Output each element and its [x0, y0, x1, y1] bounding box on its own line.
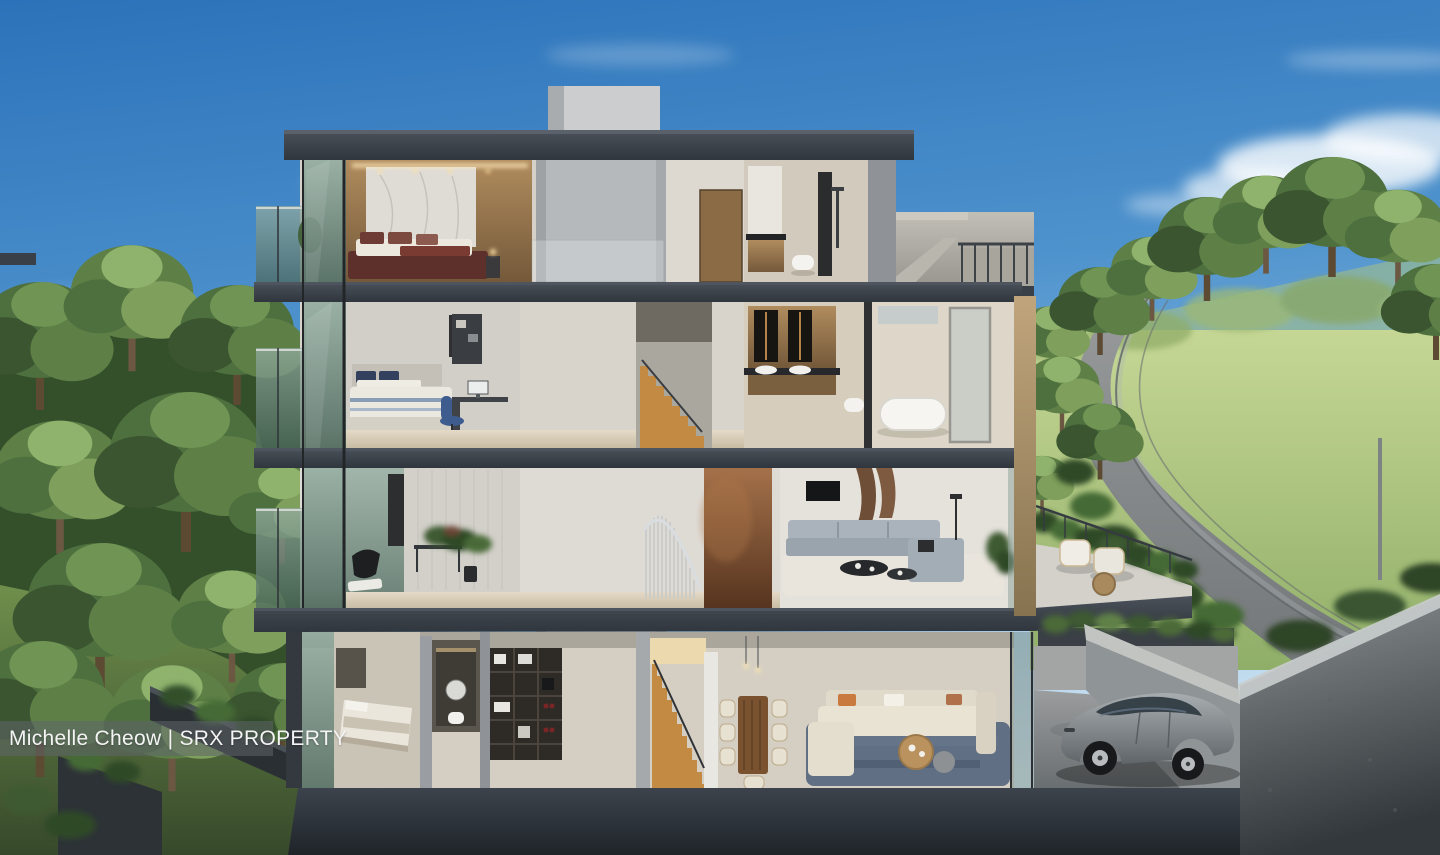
- dining-table: [738, 696, 768, 774]
- terrace-armchair: [1094, 548, 1124, 574]
- lamp-post: [1378, 438, 1382, 580]
- terrace-armchair: [1060, 540, 1090, 566]
- nightstand: [486, 256, 500, 278]
- bathtub-room: [872, 302, 1014, 448]
- basin: [755, 366, 777, 375]
- round-coffee-table: [933, 751, 955, 773]
- glass-door: [950, 308, 990, 442]
- watermark-text: Michelle Cheow | SRX PROPERTY: [9, 727, 347, 751]
- pier: [868, 158, 896, 282]
- floor-1-family-level: [300, 632, 1034, 789]
- roof-box: [548, 86, 660, 134]
- corridor-door: [700, 190, 742, 282]
- stool: [464, 566, 477, 582]
- tail-light: [1064, 728, 1075, 732]
- neighbor-roof-edge: [0, 253, 36, 265]
- toilet-3: [844, 398, 864, 412]
- family-living-room: [806, 690, 1010, 786]
- wall-tv: [806, 481, 840, 501]
- basin: [789, 366, 811, 375]
- window-glass-column: [302, 160, 346, 608]
- storage-shelving: [490, 648, 562, 760]
- roof-slab: [284, 130, 914, 160]
- display-niche: [388, 474, 404, 546]
- left-edge-wall: [286, 632, 302, 788]
- foundation: [288, 788, 1242, 855]
- wall-hung-toilet: [792, 255, 814, 270]
- corner-pier: [1014, 296, 1036, 616]
- floor-3-bedroom-bath: [300, 302, 1016, 448]
- shower-niche: [818, 172, 832, 276]
- bathroom-3: [744, 302, 872, 448]
- stairs-3: [636, 302, 712, 448]
- void-glass-balustrade: [532, 240, 664, 282]
- rattan-ottoman: [1093, 573, 1115, 595]
- shower-column: [836, 190, 839, 248]
- stairs-1: [636, 632, 718, 788]
- driveway: [1034, 611, 1240, 788]
- facade-left: [256, 160, 346, 608]
- bathroom-4: [744, 160, 868, 282]
- master-bed: [348, 232, 488, 279]
- watermark: Michelle Cheow | SRX PROPERTY: [0, 721, 273, 756]
- coffee-table: [840, 560, 888, 576]
- balcony-glass-2: [256, 508, 302, 608]
- bathtub: [880, 398, 946, 430]
- black-lounge-chair: [352, 549, 380, 578]
- powder-room: [432, 640, 480, 732]
- round-mirror: [446, 680, 466, 700]
- property-listing-image: Michelle Cheow | SRX PROPERTY: [0, 0, 1440, 855]
- round-coffee-table: [899, 735, 933, 769]
- balcony-glass-3: [256, 348, 302, 448]
